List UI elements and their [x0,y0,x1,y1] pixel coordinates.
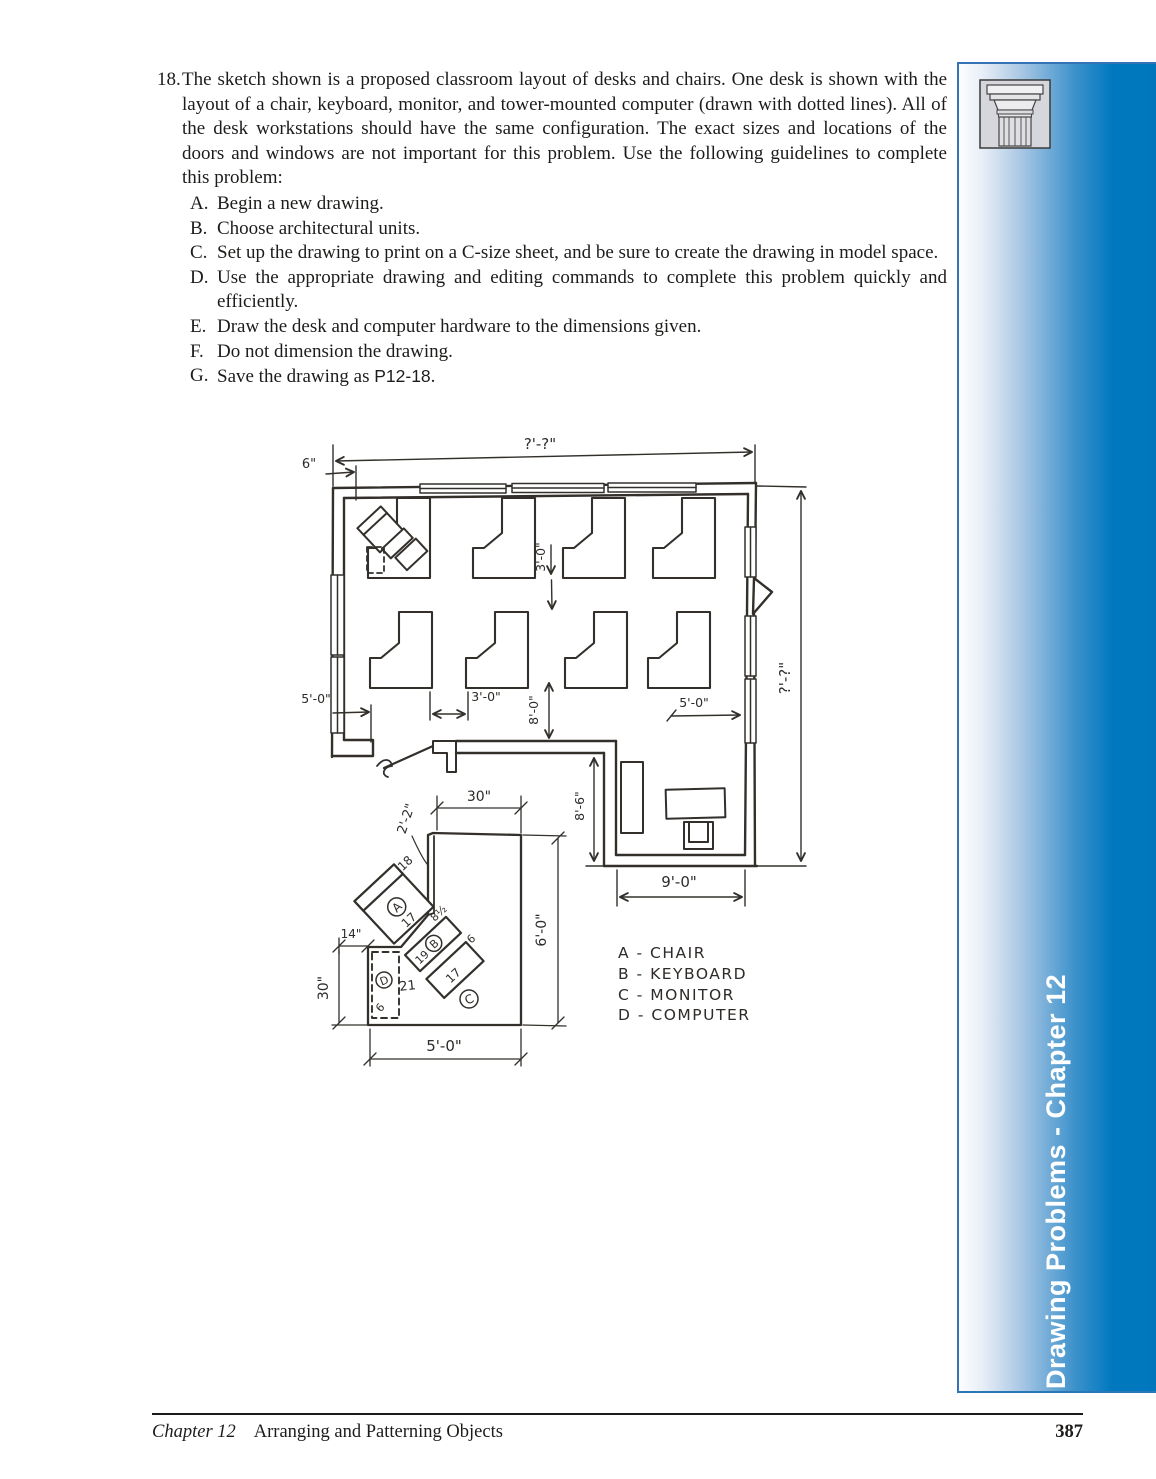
dim-left-clearance: 5'-0" [301,691,331,706]
step-letter: F. [190,340,217,365]
step-text: Choose architectural units. [217,217,947,242]
step-letter: D. [190,266,217,315]
classroom-layout-sketch: ?'-?" 6" 3'-0" 5'-0" 3'-0" 8'-0" 5'-0" ?… [280,425,830,1090]
door-swing-mark [377,760,392,777]
dim-alcove-height: 8'-6" [572,791,587,821]
dim-detail-left: 30" [316,976,332,1000]
desk-row2-col2 [466,612,528,688]
step-letter: A. [190,192,217,217]
guideline-steps: A. Begin a new drawing. B. Choose archit… [182,192,947,390]
step-text: Use the appropriate drawing and editing … [217,266,947,315]
step-e: E. Draw the desk and computer hardware t… [182,315,947,340]
student-desks [368,498,715,688]
window-left-1 [331,575,344,655]
step-c: C. Set up the drawing to print on a C-si… [182,241,947,266]
step-letter: E. [190,315,217,340]
desk-row1-col4 [653,498,715,578]
step-a: A. Begin a new drawing. [182,192,947,217]
problem-18: 18. The sketch shown is a proposed class… [157,68,947,390]
window-right-3 [745,679,756,743]
desk-row2-col1 [370,612,432,688]
computer-length-label: 21 [399,978,417,995]
dim-alcove-width: 9'-0" [661,873,697,891]
dim-right-height: ?'-?" [776,662,794,694]
dim-front-clearance: 8'-0" [526,695,541,725]
window-top-2 [512,484,604,493]
legend-keyboard: B - KEYBOARD [618,965,747,983]
dim-detail-right: 6'-0" [534,913,550,946]
step-text-period: . [431,366,436,387]
step-text: Save the drawing as P12-18. [217,364,947,390]
dim-desk-gap: 3'-0" [471,689,501,704]
desk-row2-col4 [648,612,710,688]
chapter-sidebar: Drawing Problems - Chapter 12 [957,62,1156,1393]
alcove-shelf [621,762,643,833]
dim-detail-bottom: 5'-0" [426,1037,462,1055]
desk-row1-col3 [563,498,625,578]
problem-body: The sketch shown is a proposed classroom… [182,68,947,390]
desk-row2-col3 [565,612,627,688]
dim-top-width: ?'-?" [524,435,556,453]
footer-page-number: 387 [1055,1422,1083,1443]
step-letter: B. [190,217,217,242]
window-top-3 [608,483,696,492]
wall-notch [753,578,772,614]
dim-detail-step: 14" [341,927,362,941]
door [377,746,433,777]
drawing-filename: P12-18 [374,366,430,386]
step-b: B. Choose architectural units. [182,217,947,242]
problem-paragraph: The sketch shown is a proposed classroom… [182,68,947,191]
problem-number: 18. [157,68,182,390]
step-text: Begin a new drawing. [217,192,947,217]
window-top-1 [420,484,506,493]
step-text-lead: Save the drawing as [217,366,374,387]
desk-row1-col2 [473,498,535,578]
teacher-desk [666,788,726,819]
step-text: Do not dimension the drawing. [217,340,947,365]
textbook-page: 18. The sketch shown is a proposed class… [0,0,1156,1479]
workstation-detail: A 17 18 B 19 8½ 17 6 C [354,833,521,1025]
step-g: G. Save the drawing as P12-18. [182,364,947,390]
teacher-chair [684,822,713,849]
dim-right-clearance: 5'-0" [679,695,709,710]
page-footer: Chapter 12 Arranging and Patterning Obje… [152,1413,1083,1443]
step-letter: C. [190,241,217,266]
alcove-furniture [621,762,725,849]
step-text: Set up the drawing to print on a C-size … [217,241,947,266]
legend-chair: A - CHAIR [618,944,706,962]
window-right-2 [745,616,756,676]
sketch-legend: A - CHAIR B - KEYBOARD C - MONITOR D - C… [618,944,751,1024]
dim-detail-return: 2'-2" [395,802,419,836]
dim-wall-offset: 6" [302,457,316,472]
step-d: D. Use the appropriate drawing and editi… [182,266,947,315]
step-letter: G. [190,364,217,390]
step-text: Draw the desk and computer hardware to t… [217,315,947,340]
legend-monitor: C - MONITOR [618,986,735,1004]
window-left-2 [331,657,344,733]
dim-row-gap: 3'-0" [533,542,548,572]
footer-chapter: Chapter 12 [152,1422,236,1443]
footer-section: Arranging and Patterning Objects [254,1422,503,1443]
step-f: F. Do not dimension the drawing. [182,340,947,365]
sidebar-title: Drawing Problems - Chapter 12 [1041,974,1072,1389]
column-icon [979,79,1051,149]
window-right-1 [745,527,756,577]
legend-computer: D - COMPUTER [618,1006,751,1024]
dim-detail-top: 30" [467,789,491,805]
